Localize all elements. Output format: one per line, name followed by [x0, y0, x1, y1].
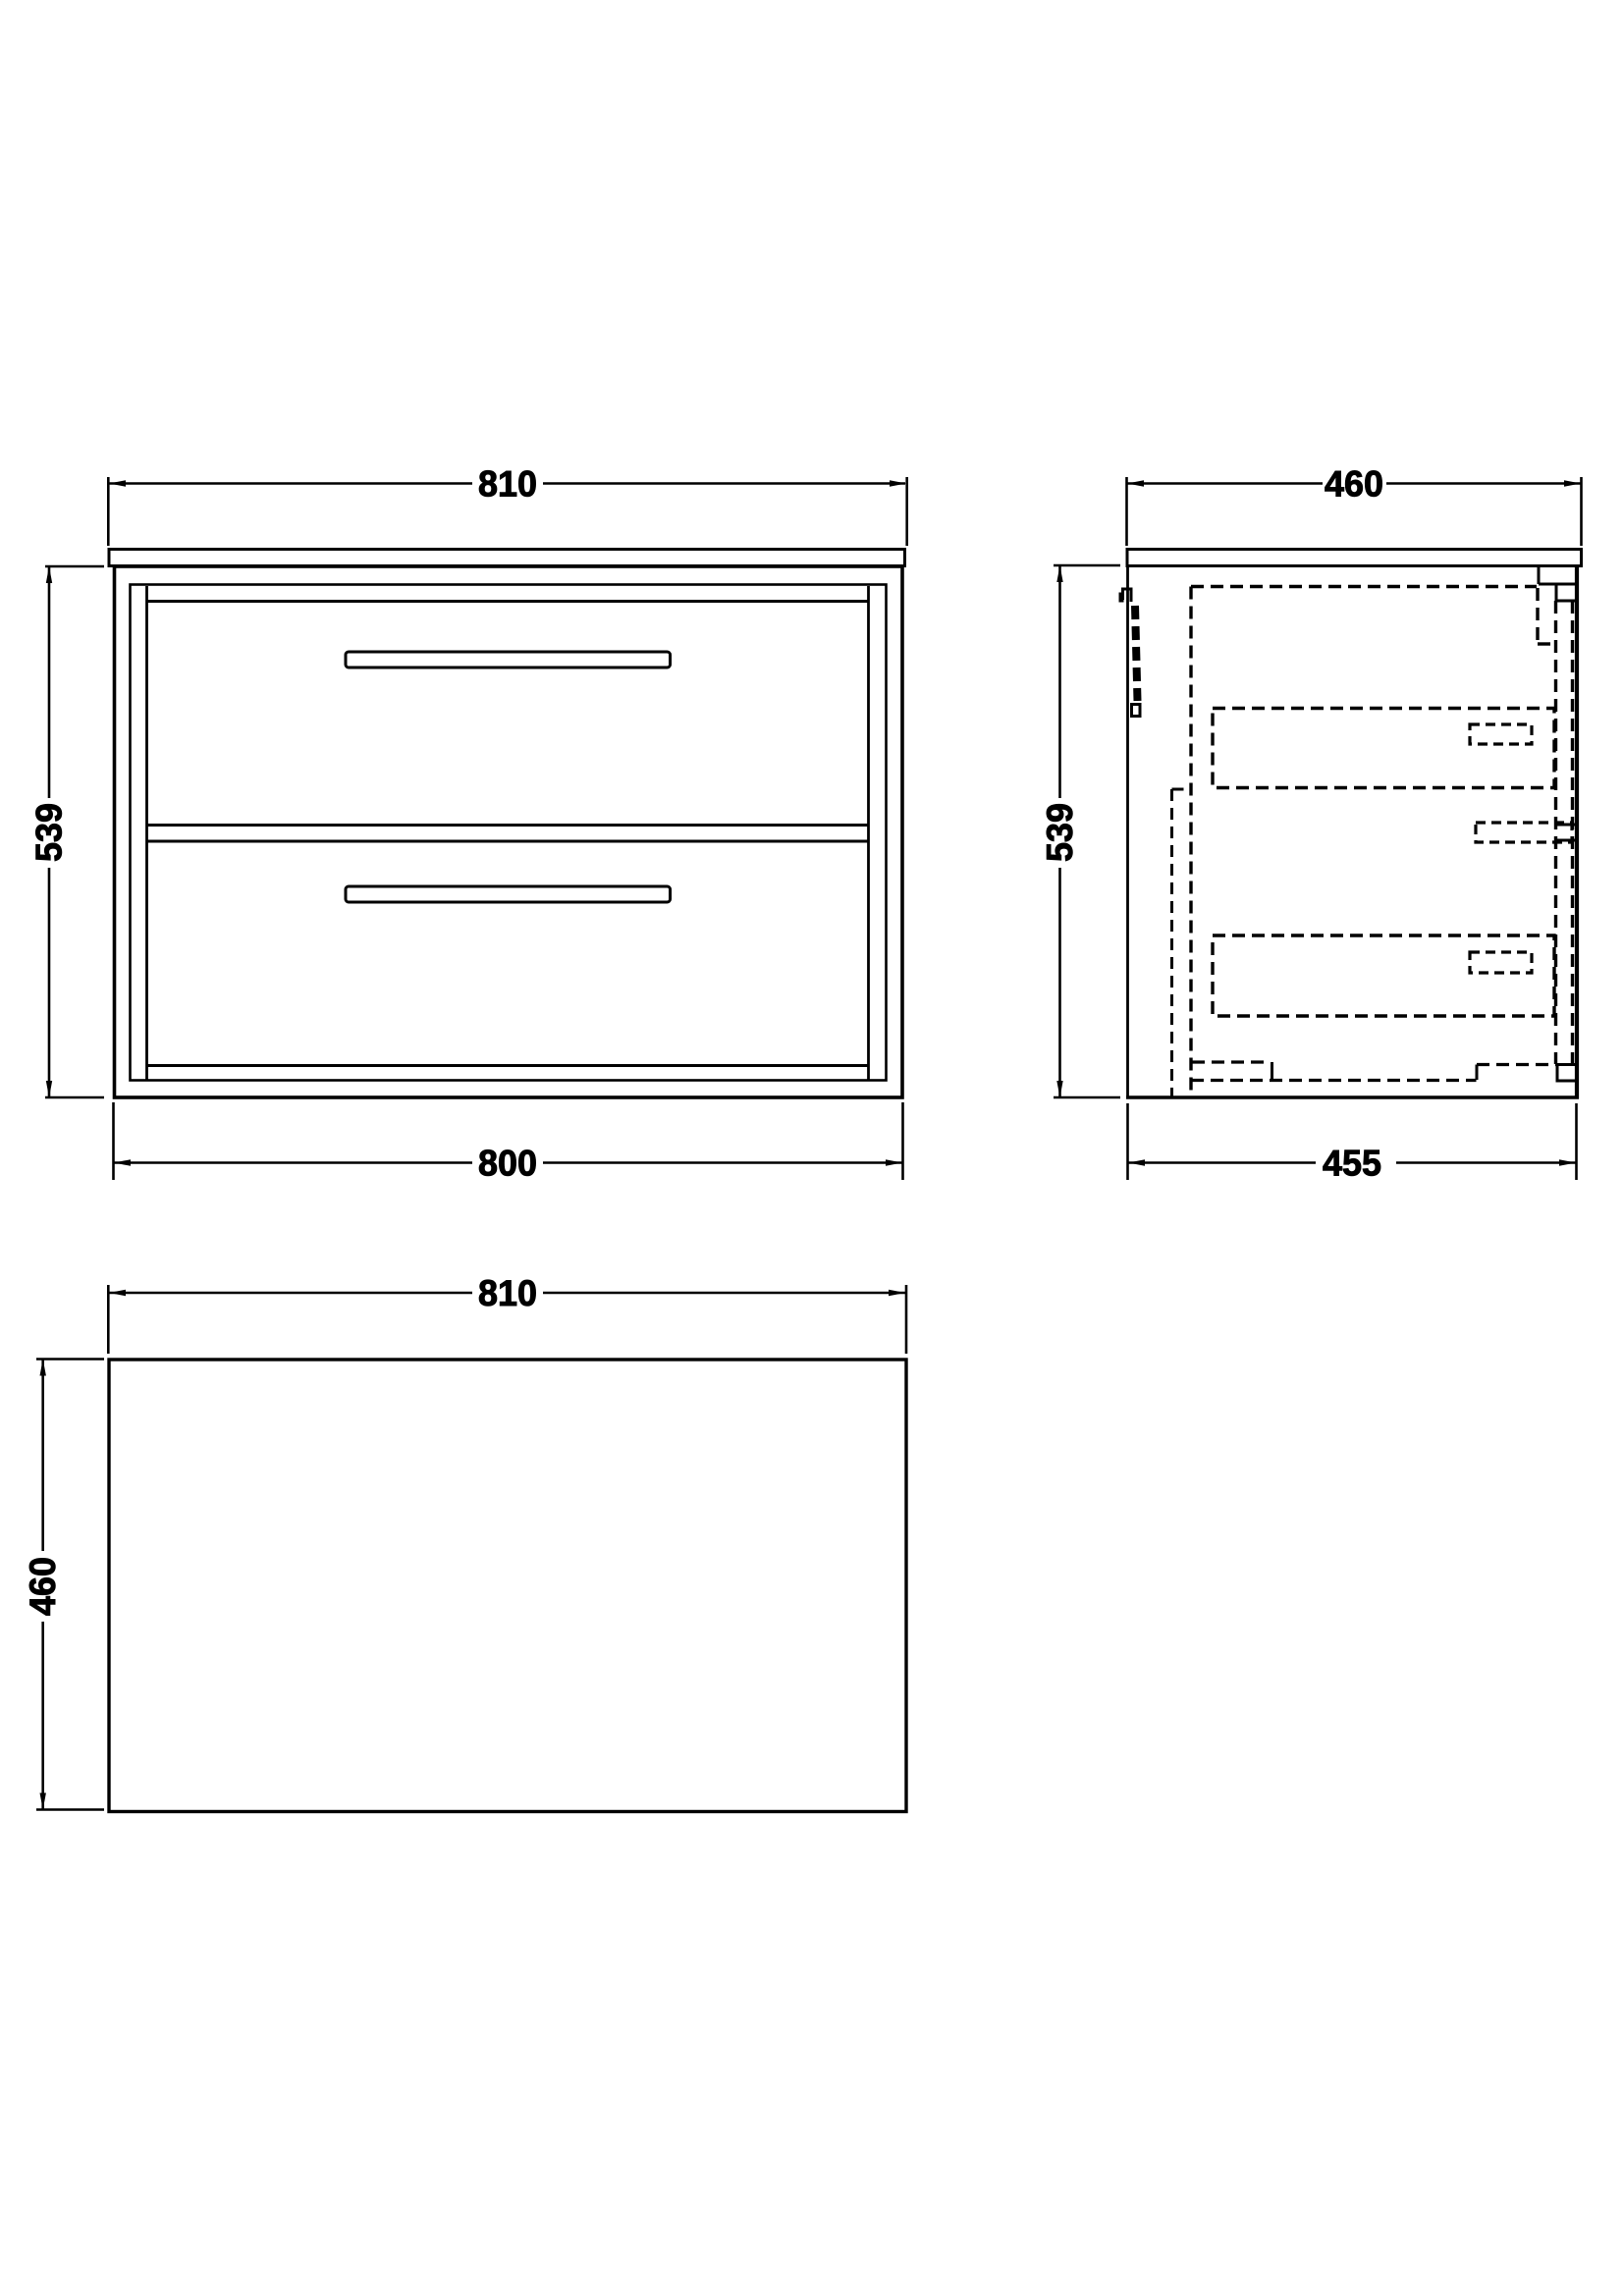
svg-text:539: 539 — [1040, 803, 1080, 862]
svg-text:460: 460 — [23, 1557, 63, 1616]
svg-text:810: 810 — [478, 1273, 537, 1313]
svg-text:800: 800 — [478, 1144, 537, 1184]
svg-text:539: 539 — [29, 803, 70, 862]
svg-text:460: 460 — [1325, 464, 1383, 505]
svg-text:810: 810 — [478, 464, 537, 505]
svg-text:455: 455 — [1323, 1144, 1381, 1184]
